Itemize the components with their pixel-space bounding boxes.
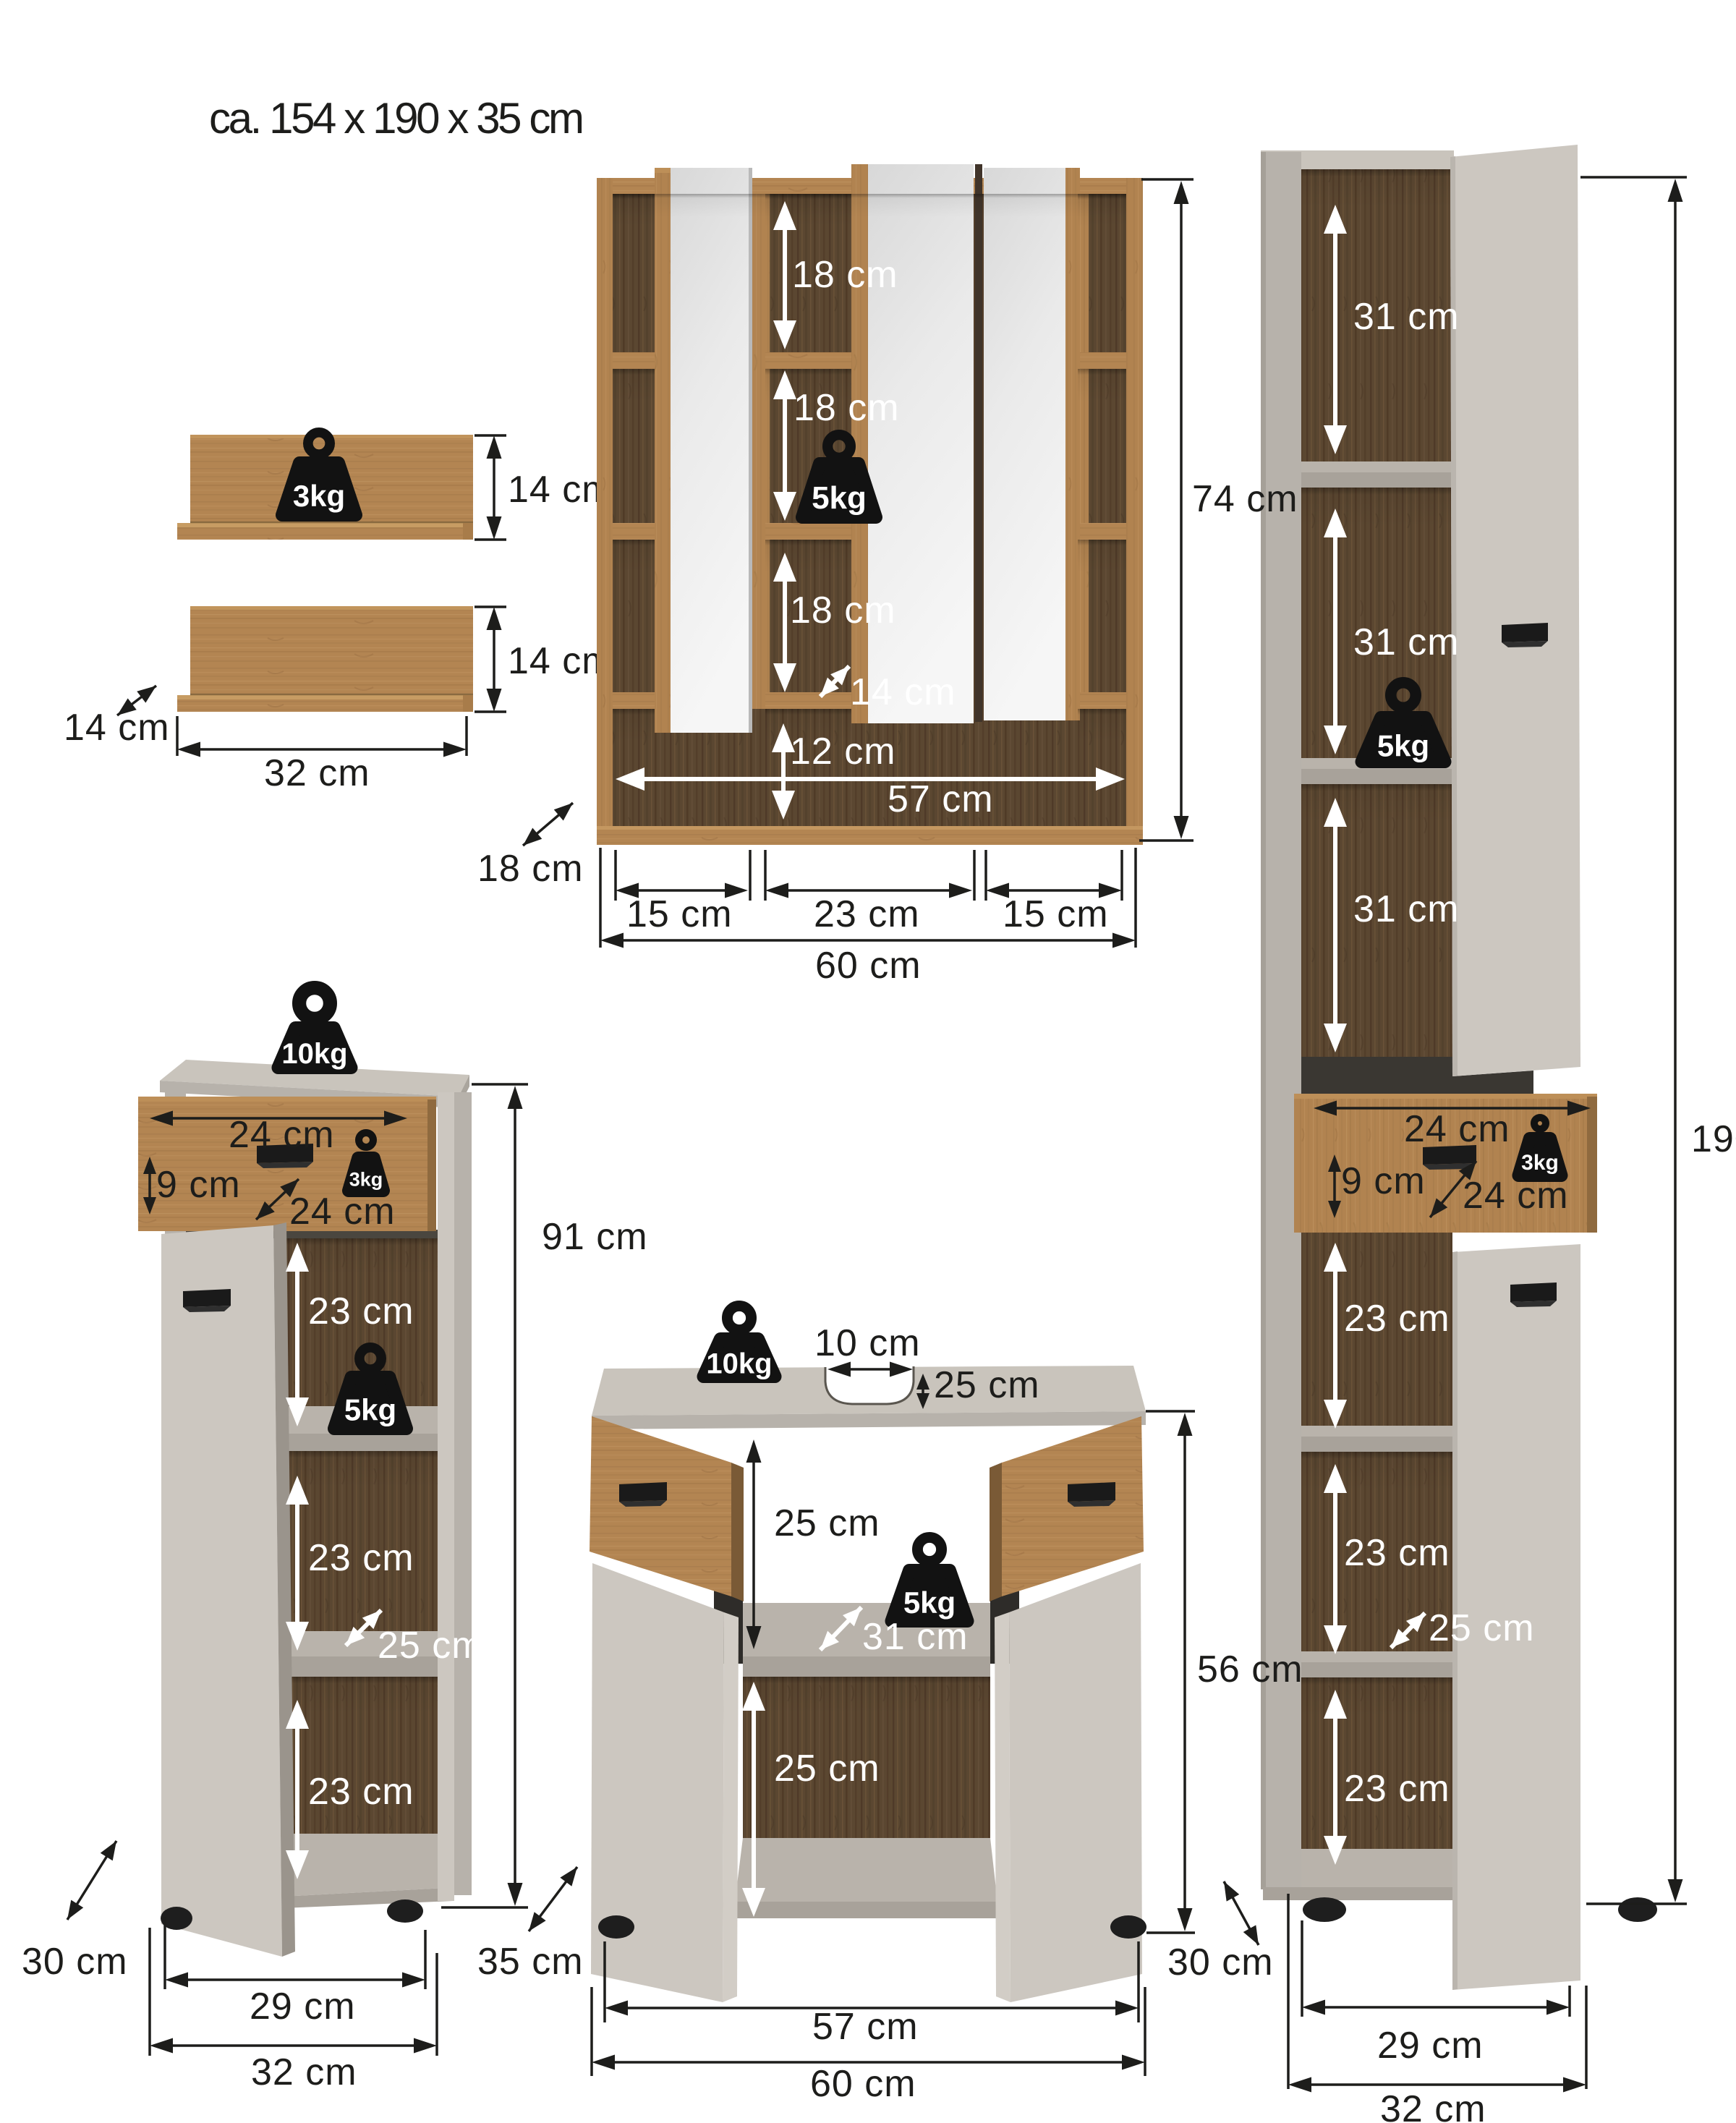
svg-text:57 cm: 57 cm [812,2006,919,2048]
svg-text:5kg: 5kg [1377,729,1429,763]
svg-text:30 cm: 30 cm [22,1941,128,1983]
svg-text:23 cm: 23 cm [1344,1532,1450,1574]
svg-text:56 cm: 56 cm [1197,1648,1303,1690]
svg-text:ca. 154 x 190 x 35 cm: ca. 154 x 190 x 35 cm [209,94,582,142]
svg-text:60 cm: 60 cm [815,945,922,987]
svg-text:29 cm: 29 cm [250,1986,356,2028]
svg-text:23 cm: 23 cm [308,1290,414,1332]
svg-text:57 cm: 57 cm [888,778,994,820]
svg-text:9 cm: 9 cm [156,1164,241,1206]
svg-text:15 cm: 15 cm [1003,893,1109,935]
svg-text:25 cm: 25 cm [774,1502,880,1544]
svg-text:5kg: 5kg [344,1393,396,1427]
svg-text:14 cm: 14 cm [64,707,170,749]
svg-text:31 cm: 31 cm [1353,621,1460,663]
svg-text:24 cm: 24 cm [1404,1108,1510,1150]
svg-text:23 cm: 23 cm [308,1537,414,1579]
svg-text:18 cm: 18 cm [793,387,900,429]
svg-text:18 cm: 18 cm [790,590,896,631]
svg-text:91 cm: 91 cm [542,1216,648,1258]
svg-text:5kg: 5kg [903,1586,956,1620]
svg-text:23 cm: 23 cm [814,893,920,935]
svg-text:30 cm: 30 cm [1167,1941,1274,1983]
svg-text:24 cm: 24 cm [229,1114,335,1156]
svg-text:74 cm: 74 cm [1192,478,1298,520]
svg-text:32 cm: 32 cm [1380,2088,1486,2123]
svg-text:23 cm: 23 cm [1344,1298,1450,1340]
svg-text:29 cm: 29 cm [1377,2025,1484,2067]
svg-text:35 cm: 35 cm [477,1941,584,1983]
svg-text:10 cm: 10 cm [814,1322,921,1364]
svg-text:25 cm: 25 cm [774,1748,880,1790]
svg-text:10kg: 10kg [281,1038,347,1070]
svg-text:10kg: 10kg [706,1348,772,1379]
svg-text:25 cm: 25 cm [934,1364,1040,1406]
svg-text:32 cm: 32 cm [251,2051,357,2093]
svg-text:190 cm: 190 cm [1691,1118,1736,1160]
svg-text:3kg: 3kg [293,479,345,513]
svg-text:9 cm: 9 cm [1341,1160,1426,1202]
svg-text:32 cm: 32 cm [264,752,370,794]
svg-text:3kg: 3kg [1521,1151,1559,1175]
svg-text:23 cm: 23 cm [1344,1768,1450,1810]
svg-text:12 cm: 12 cm [790,731,896,773]
svg-text:60 cm: 60 cm [810,2063,916,2105]
svg-text:15 cm: 15 cm [626,893,733,935]
svg-text:18 cm: 18 cm [477,848,584,890]
svg-text:14 cm: 14 cm [850,671,956,713]
svg-text:25 cm: 25 cm [1429,1607,1535,1649]
svg-text:23 cm: 23 cm [308,1771,414,1813]
svg-text:18 cm: 18 cm [792,254,898,296]
svg-text:31 cm: 31 cm [1353,296,1460,338]
svg-text:31 cm: 31 cm [1353,888,1460,930]
svg-text:3kg: 3kg [349,1169,383,1191]
svg-text:5kg: 5kg [812,480,867,516]
svg-text:25 cm: 25 cm [378,1625,484,1667]
svg-text:31 cm: 31 cm [862,1616,969,1658]
